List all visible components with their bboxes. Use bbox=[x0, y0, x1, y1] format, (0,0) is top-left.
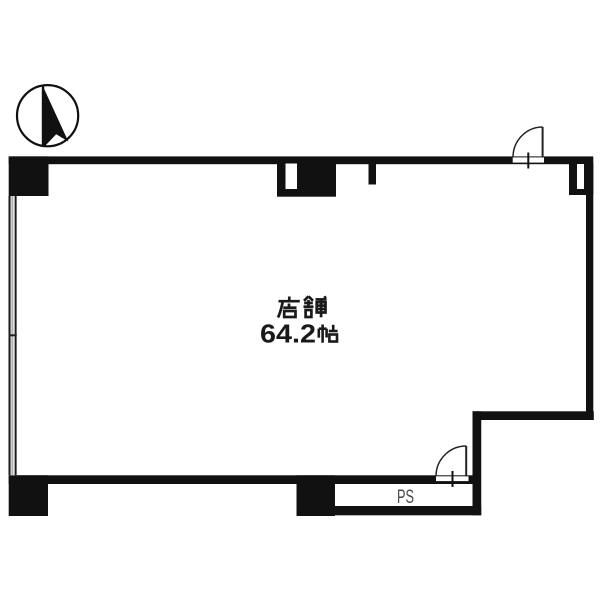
svg-text:64.2: 64.2 bbox=[260, 319, 316, 349]
svg-text:PS: PS bbox=[397, 487, 414, 508]
